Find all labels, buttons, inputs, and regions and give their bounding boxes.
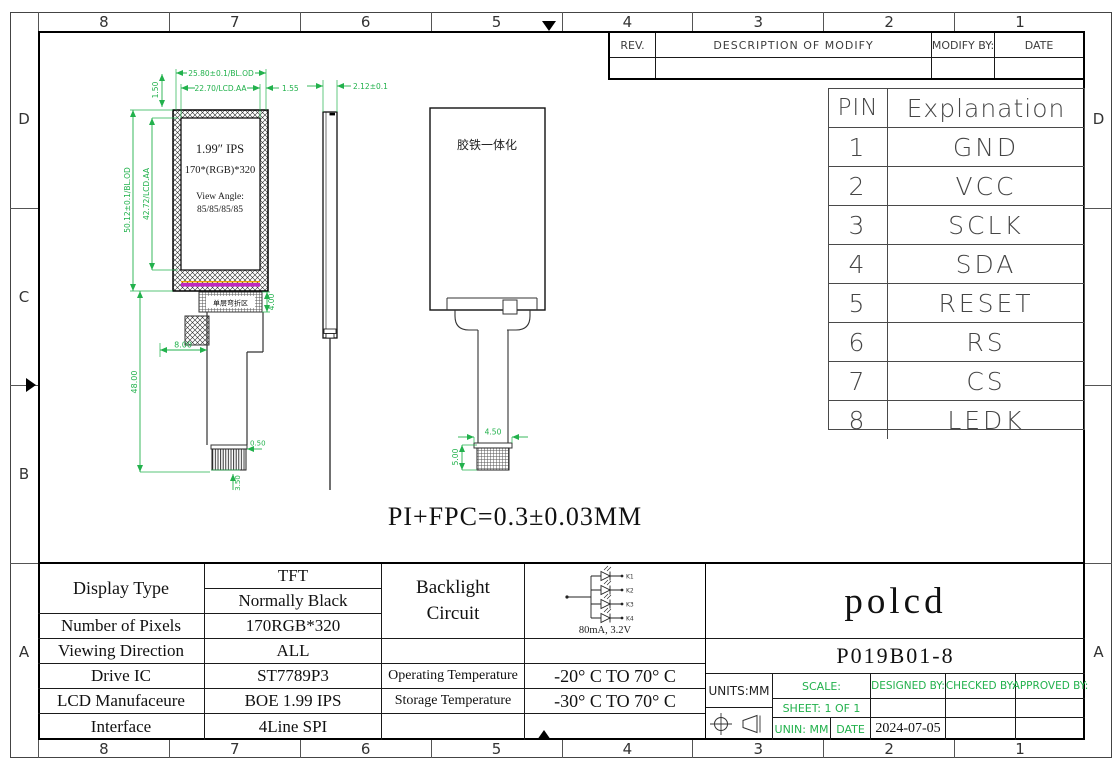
pin-table-header: PIN Explanation [829,89,1084,128]
spec-row-label: Viewing Direction [38,639,205,664]
zone-row: A [10,563,38,741]
environment-table: Backlight Circuit K1 [382,562,705,738]
pin-signal: VCC [888,167,1084,205]
operating-temp-value: -20° C TO 70° C [525,664,705,689]
screen-size-label: 1.99″ IPS [196,142,244,156]
led-label: K4 [626,615,634,622]
zone-col: 8 [38,12,169,31]
dim-aa-width: 22.70/LCD.AA [194,84,247,93]
approved-by-label: APPROVED BY: [1016,674,1085,699]
center-mark-left [26,378,36,392]
checked-by-label: CHECKED BY: [946,674,1016,699]
unin-label: UNIN: MM [773,718,831,740]
screen-resolution-label: 170*(RGB)*320 [185,165,256,176]
zone-strip-top: 8 7 6 5 4 3 2 1 [38,12,1085,31]
spec-row-label: Number of Pixels [38,614,205,639]
dim-right-margin: 1.55 [282,84,299,93]
spec-row-value: ST7789P3 [205,664,382,689]
projection-symbol-cell [706,708,773,740]
pin-table: PIN Explanation 1GND 2VCC 3SCLK 4SDA 5RE… [828,88,1085,430]
backlight-label: Backlight Circuit [382,564,525,639]
operating-temp-label: Operating Temperature [382,664,525,689]
back-view: 胶铁一体化 4.50 5.00 [430,108,545,470]
pin-number: 4 [829,245,888,283]
pin-number: 5 [829,284,888,322]
back-label: 胶铁一体化 [457,137,517,152]
approved-by-value [1016,699,1085,718]
zone-strip-bottom: 8 7 6 5 4 3 2 1 [38,740,1085,758]
driver-strip-magenta [181,283,260,287]
spec-row-label: Interface [38,714,205,740]
spec-row-label: LCD Manufaceure [38,689,205,714]
dim-fpc-offset: 8.00 [174,341,192,350]
led-label: K1 [626,573,634,580]
zone-col: 4 [562,740,693,758]
pin-row: 5RESET [829,284,1084,323]
pin-row: 6RS [829,323,1084,362]
zone-col: 5 [431,740,562,758]
pin-number: 6 [829,323,888,361]
fpc-tail-outline [207,312,263,445]
zone-col: 4 [562,12,693,31]
zone-row [1085,385,1112,563]
center-mark-top [542,21,556,31]
sheet-label: SHEET: 1 OF 1 [773,699,871,718]
pin-row: 4SDA [829,245,1084,284]
revision-header-rev: REV. [610,33,656,58]
dim-fpc-length: 48.00 [130,371,139,394]
revision-empty-cell [932,58,995,78]
empty-cell [946,718,1016,740]
pin-number: 8 [829,401,888,439]
part-number: P019B01-8 [706,639,1085,674]
spec-row-label: Drive IC [38,664,205,689]
pin-number: 2 [829,167,888,205]
spec-table: Display Type TFT Normally Black Number o… [38,562,382,738]
zone-row [1085,208,1112,386]
spec-display-type-value2: Normally Black [205,589,382,614]
back-connector-plate [474,443,512,448]
fpc-connector [212,449,246,470]
storage-temp-label: Storage Temperature [382,689,525,714]
zone-col: 6 [300,740,431,758]
dim-bend: 4.00 [267,293,276,310]
fpc-thickness-note: PI+FPC=0.3±0.03MM [360,501,670,533]
pin-row: 8LEDK [829,401,1084,439]
empty-cell [382,714,525,740]
scale-label: SCALE: [773,674,871,699]
designed-by-value [871,699,946,718]
pin-header-explanation: Explanation [888,89,1084,127]
zone-col: 8 [38,740,169,758]
date-label: DATE [831,718,871,740]
pin-row: 1GND [829,128,1084,167]
zone-col: 7 [169,740,300,758]
spec-row-value: 170RGB*320 [205,614,382,639]
zone-col: 1 [954,12,1085,31]
back-tail-shoulders [455,310,530,330]
back-tail [478,330,508,443]
dim-top-margin: 1.50 [151,81,160,98]
pin-row: 7CS [829,362,1084,401]
backlight-circuit-diagram: K1 K2 K3 K4 80mA, 3.2V [525,564,705,639]
backlight-label-line1: Backlight [416,575,490,601]
view-angle-values: 85/85/85/85 [197,205,243,215]
dim-conn-width: 4.50 [485,428,502,437]
dim-bl-height: 50.12±0.1/BL.OD [123,167,132,233]
backlight-circuit-cell: K1 K2 K3 K4 80mA, 3.2V [525,564,705,639]
side-extension-lines [323,80,337,112]
back-tab [503,300,517,314]
back-connector [477,448,509,470]
led-label: K2 [626,587,634,594]
front-view: 1.99″ IPS 170*(RGB)*320 View Angle: 85/8… [123,60,474,491]
pin-signal: SCLK [888,206,1084,244]
zone-row: D [1085,31,1112,208]
zone-col: 1 [954,740,1085,758]
drawing-views: 1.99″ IPS 170*(RGB)*320 View Angle: 85/8… [100,60,720,545]
pin-signal: GND [888,128,1084,166]
checked-by-value [946,699,1016,718]
dim-conn-top: 0.50 [250,440,266,448]
led-wiring [567,566,622,623]
led-label: K3 [626,601,634,608]
zone-row: A [1085,563,1112,741]
zone-col: 6 [300,12,431,31]
pin-number: 3 [829,206,888,244]
third-angle-projection-icon [707,709,771,739]
storage-temp-value: -30° C TO 70° C [525,689,705,714]
pin-row: 2VCC [829,167,1084,206]
empty-cell [525,639,705,664]
revision-header-modify-by: MODIFY BY: [932,33,995,58]
pin-number: 1 [829,128,888,166]
zone-row: D [10,31,38,208]
dim-conn-bottom: 3.50 [234,475,242,491]
zone-row: C [10,208,38,386]
zone-row: B [10,385,38,563]
dim-conn-height: 5.00 [451,448,460,465]
revision-header-date: DATE [995,33,1083,58]
zone-col: 3 [692,12,823,31]
pin-signal: CS [888,362,1084,400]
revision-header-description: DESCRIPTION OF MODIFY [656,33,932,58]
side-bottom-detail [324,329,336,334]
zone-col: 2 [823,740,954,758]
spec-display-type-value1: TFT [205,564,382,589]
pin-signal: RS [888,323,1084,361]
designed-by-label: DESIGNED BY: [871,674,946,699]
units-label: UNITS:MM [706,674,773,708]
title-block: polcd P019B01-8 UNITS:MM SCALE: DESIGNED… [705,562,1085,738]
led-node [621,602,624,605]
spec-row-value: BOE 1.99 IPS [205,689,382,714]
pin-signal: SDA [888,245,1084,283]
driver-strip-orange [181,281,260,282]
zone-col: 7 [169,12,300,31]
zone-col: 3 [692,740,823,758]
side-bottom-detail2 [326,334,334,339]
spec-row-value: 4Line SPI [205,714,382,740]
pin-header-pin: PIN [829,89,888,127]
spec-row-value: ALL [205,639,382,664]
drawing-sheet: 8 7 6 5 4 3 2 1 8 7 6 5 4 3 2 1 D C B A … [0,0,1120,771]
circuit-input-node [565,595,568,598]
brand-logo: polcd [706,564,1085,639]
fpc-bend-label: 单层弯折区 [213,299,248,308]
side-top-detail [330,113,336,116]
spec-display-type-label: Display Type [38,564,205,614]
view-angle-label: View Angle: [196,192,244,202]
pin-signal: LEDK [888,401,1084,439]
led-node [621,616,624,619]
side-profile [323,112,337,338]
dim-aa-height: 42.72/LCD.AA [142,167,151,220]
dim-thickness: 2.12±0.1 [353,82,388,91]
backlight-label-line2: Circuit [427,601,480,627]
led-node [621,574,624,577]
side-view: 2.12±0.1 [307,80,388,490]
pin-row: 3SCLK [829,206,1084,245]
pin-signal: RESET [888,284,1084,322]
backlight-rating: 80mA, 3.2V [579,625,632,636]
date-value: 2024-07-05 [871,718,946,740]
dim-bl-width: 25.80±0.1/BL.OD [188,69,254,78]
pin-number: 7 [829,362,888,400]
empty-cell [382,639,525,664]
zone-col: 2 [823,12,954,31]
fpc-connector-plate [211,445,247,449]
led-node [621,588,624,591]
zone-strip-right: D A [1085,31,1112,740]
